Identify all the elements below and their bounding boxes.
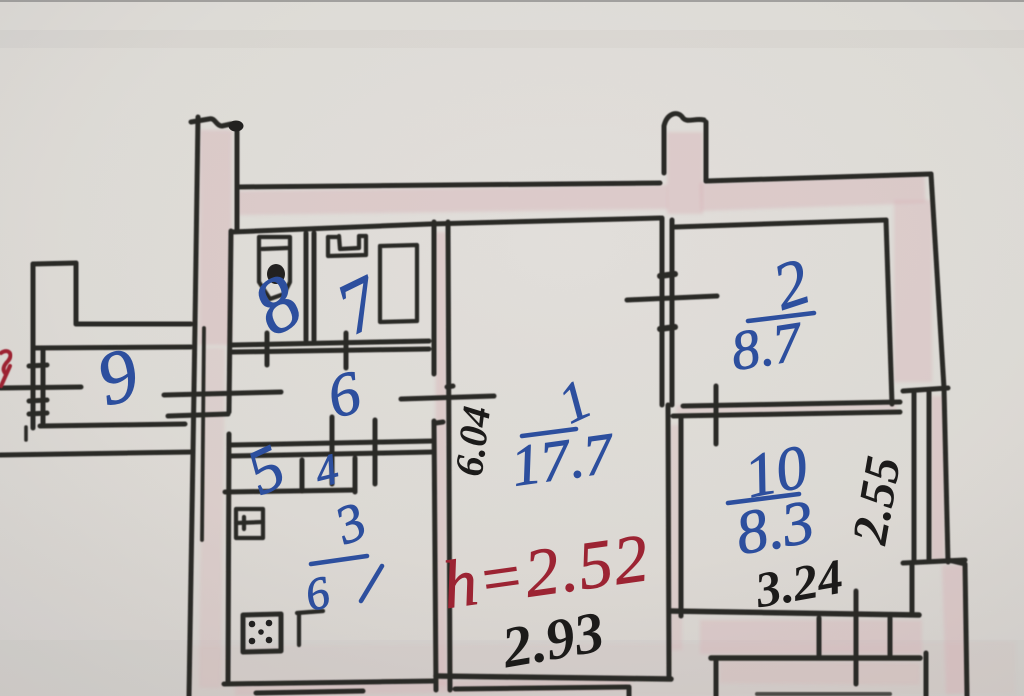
svg-text:8.7: 8.7 (727, 311, 808, 383)
svg-text:6.04: 6.04 (446, 404, 499, 479)
